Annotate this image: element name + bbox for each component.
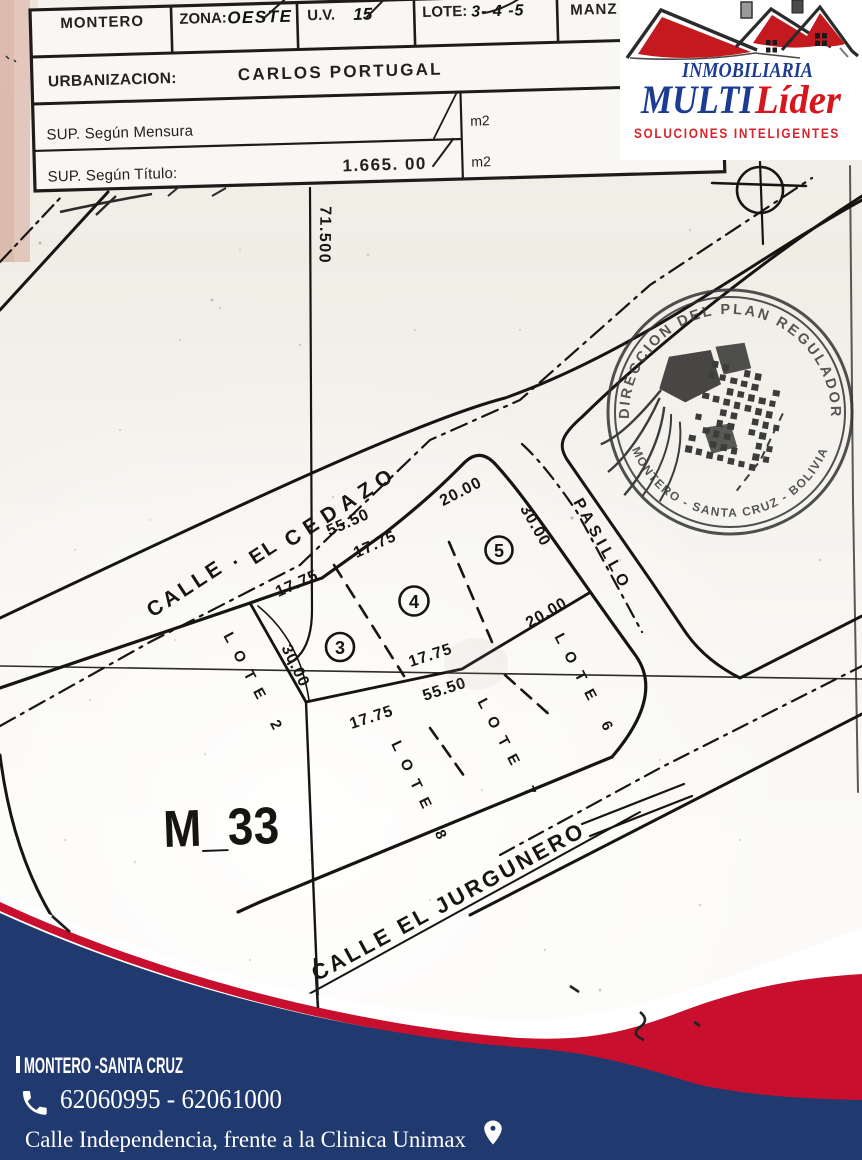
svg-text:OESTE: OESTE [227, 7, 293, 28]
svg-text:MONTERO -SANTA CRUZ: MONTERO -SANTA CRUZ [24, 1053, 183, 1078]
svg-text:M_33: M_33 [162, 797, 280, 858]
svg-text:SOLUCIONES INTELIGENTES: SOLUCIONES INTELIGENTES [634, 125, 840, 141]
svg-text:62060995 - 62061000: 62060995 - 62061000 [60, 1084, 282, 1114]
svg-text:MONTERO: MONTERO [60, 13, 144, 32]
svg-text:3: 3 [335, 638, 345, 658]
svg-text:U.V.: U.V. [307, 6, 335, 24]
svg-text:Calle Independencia, frente a: Calle Independencia, frente a la Clinica… [25, 1127, 466, 1153]
svg-text:URBANIZACION:: URBANIZACION: [48, 70, 177, 91]
svg-text:3- 4 -5: 3- 4 -5 [471, 2, 525, 20]
svg-text:1.665. 00: 1.665. 00 [342, 154, 427, 175]
svg-text:m2: m2 [470, 112, 490, 129]
svg-text:MULTI: MULTI [640, 77, 754, 122]
svg-text:m2: m2 [471, 153, 491, 170]
svg-text:LOTE:: LOTE: [422, 3, 467, 21]
svg-text:71.500: 71.500 [315, 206, 333, 264]
svg-text:Líder: Líder [754, 77, 841, 122]
svg-text:ZONA:: ZONA: [179, 10, 227, 28]
svg-text:5: 5 [494, 541, 504, 561]
svg-text:SUP. Según Título:: SUP. Según Título: [47, 165, 177, 186]
svg-text:4: 4 [409, 592, 419, 612]
svg-text:MANZ: MANZ [570, 1, 618, 19]
